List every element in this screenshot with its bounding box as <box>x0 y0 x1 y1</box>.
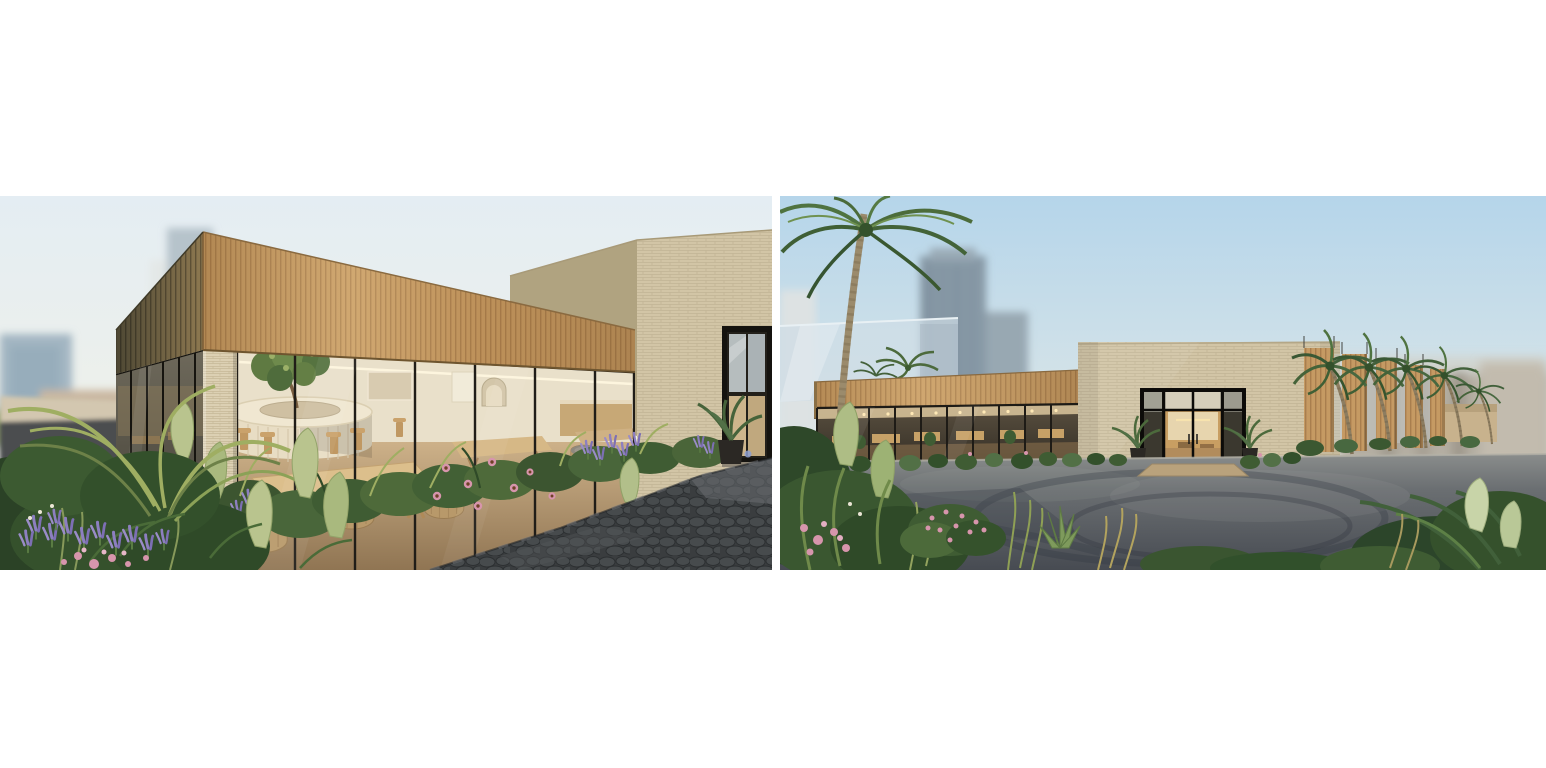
render-gallery <box>0 0 1546 768</box>
page: { "page": { "background_color": "#ffffff… <box>0 0 1546 768</box>
render-image-entrance-parking <box>780 196 1546 570</box>
entrance-parking-illustration <box>780 196 1546 570</box>
pass-through-window <box>368 372 412 400</box>
wall-art <box>452 372 476 402</box>
entry-walkway <box>1138 464 1248 476</box>
entry-glass-doors <box>1140 388 1246 467</box>
render-image-cafe-terrace <box>0 196 772 570</box>
cafe-terrace-illustration <box>0 196 772 570</box>
